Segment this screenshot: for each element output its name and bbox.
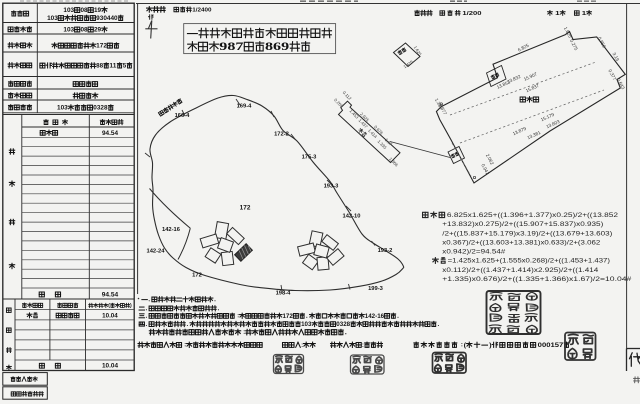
svg-text:(: ( — [108, 303, 110, 309]
svg-text:/2+((15.837+15.179)x3.19)/2+((: /2+((15.837+15.179)x3.19)/2+((13.679+13.… — [442, 230, 612, 237]
svg-text:15.837: 15.837 — [525, 83, 540, 93]
svg-text:103: 103 — [57, 105, 68, 112]
svg-text:x0.942)/2=94.54#: x0.942)/2=94.54# — [442, 249, 505, 256]
svg-text:0328: 0328 — [93, 105, 108, 112]
svg-text:987: 987 — [219, 41, 244, 53]
svg-text:172: 172 — [240, 205, 251, 212]
svg-text:3.19: 3.19 — [612, 52, 621, 63]
svg-text:172: 172 — [96, 43, 107, 50]
svg-text:+1.335)x0.676)/2+((1.335+1.366: +1.335)x0.676)/2+((1.335+1.366)x1.67)/2=… — [442, 276, 631, 283]
svg-text:0.643: 0.643 — [616, 78, 626, 91]
svg-text:0.850: 0.850 — [597, 36, 607, 49]
svg-text:19: 19 — [94, 7, 102, 14]
svg-text:13.603: 13.603 — [545, 119, 560, 129]
svg-text:10.04: 10.04 — [102, 312, 118, 319]
svg-text:13.879: 13.879 — [512, 126, 527, 136]
svg-text:1.425: 1.425 — [402, 59, 414, 69]
svg-text:): ) — [489, 342, 492, 349]
svg-text:6.825: 6.825 — [517, 43, 530, 53]
svg-text:10.04: 10.04 — [102, 363, 118, 370]
svg-text:0.112: 0.112 — [342, 90, 353, 101]
svg-text:94.54: 94.54 — [102, 291, 119, 298]
svg-text:142-16: 142-16 — [365, 313, 385, 320]
svg-text:08: 08 — [81, 7, 89, 14]
svg-text:172: 172 — [192, 273, 202, 279]
svg-text:+13.832)x0.275)/2+((15.907+15.: +13.832)x0.275)/2+((15.907+15.837)x0.935… — [442, 221, 603, 228]
svg-text:869: 869 — [265, 41, 290, 53]
svg-text::: : — [301, 342, 303, 349]
svg-text:0.275: 0.275 — [569, 39, 579, 52]
svg-text:(: ( — [464, 342, 468, 349]
svg-text:172: 172 — [283, 313, 294, 320]
svg-text:5: 5 — [123, 63, 127, 70]
svg-text:15.907: 15.907 — [523, 71, 538, 81]
svg-text:1/200: 1/200 — [462, 11, 481, 17]
svg-text:29: 29 — [94, 26, 102, 33]
svg-text:6.825x1.625+((1.396+1.377)x0.2: 6.825x1.625+((1.396+1.377)x0.25)/2+((13.… — [447, 212, 618, 219]
svg-text:142-24: 142-24 — [147, 249, 166, 255]
svg-text::: : — [362, 342, 364, 349]
svg-text:x0.112)/2+((1.437+1.414)x2.925: x0.112)/2+((1.437+1.414)x2.925)/2+((1.41… — [442, 267, 598, 274]
svg-text:103: 103 — [63, 7, 74, 14]
svg-text:0.268: 0.268 — [333, 97, 344, 109]
svg-text:198-4: 198-4 — [276, 291, 292, 297]
svg-text:166-4: 166-4 — [175, 113, 191, 119]
svg-text:): ) — [130, 303, 132, 309]
svg-text:193-2: 193-2 — [378, 248, 393, 254]
svg-text:169-4: 169-4 — [237, 104, 253, 110]
svg-text:1.453: 1.453 — [349, 108, 360, 120]
svg-text:930440: 930440 — [96, 15, 118, 22]
svg-text:88: 88 — [96, 63, 103, 70]
svg-text:11: 11 — [109, 63, 117, 70]
svg-text:13.832: 13.832 — [506, 74, 521, 84]
svg-text:193-3: 193-3 — [324, 184, 340, 190]
svg-text:=1.425x1.625+(1.555x0.268)/2+(: =1.425x1.625+(1.555x0.268)/2+((1.453+1.4… — [448, 258, 610, 265]
svg-text:142-16: 142-16 — [162, 227, 181, 233]
svg-text:175-3: 175-3 — [302, 155, 318, 161]
svg-text:08: 08 — [81, 26, 89, 33]
svg-text:142-10: 142-10 — [343, 214, 361, 220]
svg-text:199-3: 199-3 — [368, 286, 384, 292]
svg-text:0.942: 0.942 — [480, 163, 490, 176]
svg-text:103: 103 — [63, 26, 74, 33]
svg-text:94.54: 94.54 — [102, 130, 118, 137]
svg-text:103: 103 — [47, 15, 58, 22]
svg-text:1/2400: 1/2400 — [192, 7, 211, 13]
svg-text:000157: 000157 — [538, 342, 564, 349]
svg-text:0328: 0328 — [336, 321, 350, 328]
svg-text:x0.367)/2+((13.603+13.381)x0.6: x0.367)/2+((13.603+13.381)x0.633)/2+(3.0… — [442, 239, 600, 246]
svg-text:103: 103 — [301, 321, 312, 328]
svg-text:172-2: 172-2 — [274, 132, 289, 138]
